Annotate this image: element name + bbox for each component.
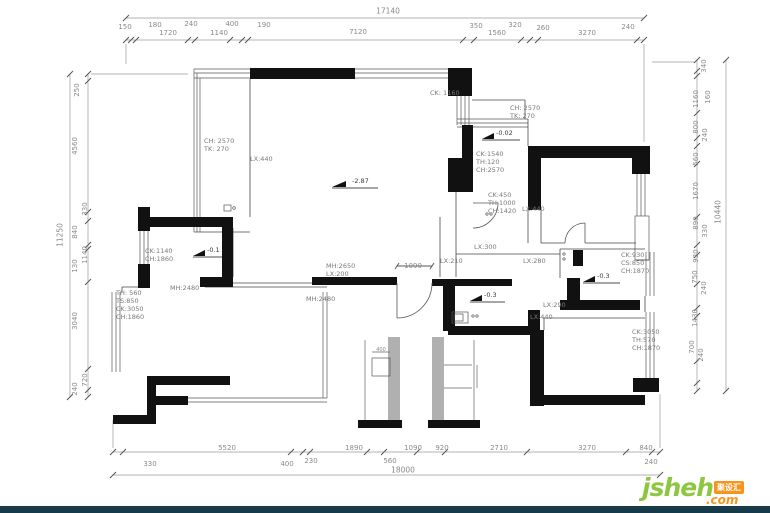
floorplan-page: 17140 1720 1140 7120 1560 3270 150 180 2… <box>0 0 770 513</box>
room-annotation: MH:2650 LX:200 <box>326 262 355 278</box>
level-label: -0.3 <box>597 272 610 280</box>
dim-label: 1670 <box>692 182 700 200</box>
dim-label: 1160 <box>692 90 700 108</box>
room-annotation: CK:930 CS:850 CH:1870 <box>621 251 649 275</box>
dim-label: 240 <box>644 458 657 466</box>
dim-label: 340 <box>700 59 708 72</box>
dim-label: 720 <box>81 373 89 386</box>
level-label: -0.1 <box>207 246 220 254</box>
jsheh-tld: .com <box>706 493 738 507</box>
room-annotation: CH: 2570 TK: 270 <box>510 104 540 120</box>
dim-label: 560 <box>383 457 396 465</box>
dim-label: 240 <box>697 348 705 361</box>
dim-label: 1430 <box>691 309 699 327</box>
dim-label: 11250 <box>56 223 65 247</box>
dim-label: 230 <box>304 457 317 465</box>
dim-label: 240 <box>701 128 709 141</box>
room-annotation: LX:210 <box>440 257 463 265</box>
room-annotation: TH: 560 TS:850 CK:3050 CH:1860 <box>116 289 144 321</box>
dim-label: 180 <box>148 21 161 29</box>
level-label: -2.87 <box>352 177 369 185</box>
dim-label: 240 <box>700 281 708 294</box>
room-annotation: CH: 2570 TK: 270 <box>204 137 234 153</box>
dim-label: 1140 <box>210 29 228 37</box>
dim-label: 800 <box>692 120 700 133</box>
room-annotation: MH:2480 <box>170 284 199 292</box>
jsheh-logo[interactable]: jsheh 聚设汇 .com <box>642 477 760 505</box>
dim-label: 10440 <box>714 200 723 224</box>
dim-label: 18000 <box>391 466 415 475</box>
dim-label: 1140 <box>81 246 89 264</box>
dim-label: 700 <box>688 340 696 353</box>
room-annotation: MH:2480 <box>306 295 335 303</box>
dim-label: 3040 <box>71 312 79 330</box>
dim-label: 350 <box>469 22 482 30</box>
dim-label: 4560 <box>71 137 79 155</box>
dim-label: 400 <box>225 20 238 28</box>
dim-label: 240 <box>184 20 197 28</box>
jsheh-logo-text: jsheh <box>642 473 713 502</box>
dim-label: 1560 <box>488 29 506 37</box>
dim-label: 840 <box>639 444 652 452</box>
level-label: -0.02 <box>496 129 513 137</box>
dim-label: 160 <box>704 90 712 103</box>
room-annotation: LX:300 <box>474 243 497 251</box>
detail-dim: 400 <box>376 347 386 353</box>
room-annotation: LX:290 <box>543 301 566 309</box>
dim-label: 930 <box>692 249 700 262</box>
dim-label: 750 <box>691 270 699 283</box>
dim-label: 5520 <box>218 444 236 452</box>
level-label: -0.3 <box>484 291 497 299</box>
room-annotation: LX:440 <box>522 205 545 213</box>
dim-label: 330 <box>701 224 709 237</box>
walls <box>113 68 659 424</box>
room-annotation: CK:450 TH:1000 CH:1420 <box>488 191 516 215</box>
dim-label: 1890 <box>345 444 363 452</box>
room-annotation: CK: 1160 <box>430 89 460 97</box>
dim-label: 3270 <box>578 29 596 37</box>
fixture-symbols <box>224 205 565 323</box>
room-annotation: CK:1140 CH:1860 <box>145 247 173 263</box>
dim-label: 1090 <box>404 444 422 452</box>
dim-label: 130 <box>71 259 79 272</box>
dim-label: 150 <box>118 23 131 31</box>
room-annotation: CK:3050 TH:570 CH:1870 <box>632 328 660 352</box>
dim-label: 2710 <box>490 444 508 452</box>
dim-label: 250 <box>73 83 81 96</box>
room-annotation: LX:440 <box>250 155 273 163</box>
dim-label: 240 <box>71 382 79 395</box>
door-width-dim: 1090 <box>404 262 422 270</box>
dim-label: 240 <box>621 23 634 31</box>
room-annotation: CK:1540 TH:120 CH:2570 <box>476 150 504 174</box>
room-annotation: LX:440 <box>530 313 553 321</box>
dim-label: 7120 <box>349 28 367 36</box>
dim-label: 17140 <box>376 7 400 16</box>
dim-label: 1720 <box>159 29 177 37</box>
dim-label: 840 <box>71 225 79 238</box>
dim-label: 190 <box>257 21 270 29</box>
floor-plan-drawing <box>0 0 770 513</box>
dim-label: 890 <box>692 216 700 229</box>
bottom-bar <box>0 506 770 513</box>
dim-label: 3270 <box>578 444 596 452</box>
dim-label: 330 <box>81 202 89 215</box>
dim-label: 260 <box>536 24 549 32</box>
dim-label: 560 <box>692 152 700 165</box>
dim-label: 400 <box>280 460 293 468</box>
dim-label: 920 <box>435 444 448 452</box>
room-annotation: LX:280 <box>523 257 546 265</box>
dim-label: 320 <box>508 21 521 29</box>
dim-label: 330 <box>143 460 156 468</box>
